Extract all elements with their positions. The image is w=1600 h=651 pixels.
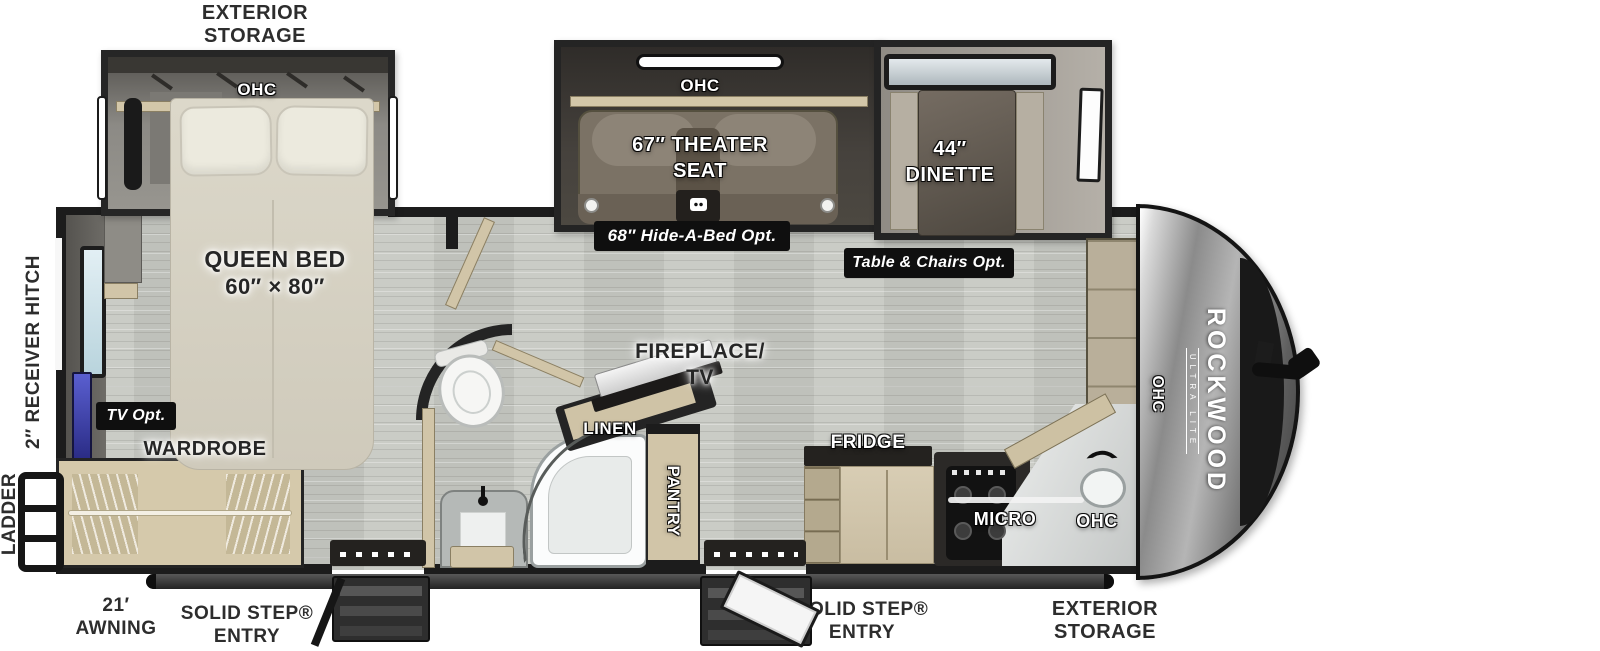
bedroom-window: [388, 96, 398, 200]
fireplace-tv-label: FIREPLACE/: [630, 340, 770, 364]
micro-label: MICRO: [950, 508, 1060, 530]
slideout-back-band: [108, 57, 388, 73]
fridge-drawers: [804, 466, 840, 564]
theater-seat-label: 67″ THEATER: [590, 134, 810, 158]
exterior-storage-label-top: EXTERIOR STORAGE: [175, 2, 335, 48]
dinette-label: 44″: [880, 138, 1020, 162]
awning-line1: 21′: [64, 594, 168, 617]
bedroom-shelf: [104, 283, 138, 299]
bedroom-corner-cabinet: [104, 215, 142, 283]
receiver-hitch-label: 2″ RECEIVER HITCH: [22, 232, 46, 472]
rv-floorplan: OHC QUEEN BED 60″ × 80″ 67″ THEATER SEAT…: [0, 0, 1600, 651]
vanity-faucet-stem: [481, 486, 485, 498]
linen-label: LINEN: [568, 418, 652, 440]
skylight: [884, 54, 1056, 90]
mattress-seam: [272, 200, 274, 458]
brand-series: ULTRA LITE: [1186, 348, 1199, 454]
rear-window: [80, 246, 106, 378]
pillow: [275, 105, 368, 177]
entry-threshold-track: [714, 552, 798, 557]
tv-option-chip: TV Opt.: [96, 402, 176, 430]
step-tread: [340, 586, 422, 596]
exterior-storage-label-bottom: EXTERIOR STORAGE: [1025, 598, 1185, 644]
solid-step-entry-label: SOLID STEP® ENTRY: [162, 602, 332, 648]
dinette-bench: [1016, 92, 1044, 230]
ohc-label-kitchen: OHC: [1062, 510, 1132, 532]
awning-line2: AWNING: [64, 617, 168, 640]
ohc-label-theater: OHC: [665, 76, 735, 96]
kitchen-sink: [1080, 468, 1126, 508]
ohc-label-front: OHC: [1147, 362, 1167, 426]
solid-step-line1: SOLID STEP®: [162, 602, 332, 625]
hide-a-bed-option-chip: 68″ Hide-A-Bed Opt.: [594, 221, 790, 251]
brand-logo: ROCKWOOD ULTRA LITE: [1185, 291, 1231, 511]
console-outlet-icon: [690, 198, 707, 211]
exterior-storage-line1: EXTERIOR: [175, 2, 335, 25]
towel-bar: [948, 497, 1084, 503]
fridge-door-divider: [886, 470, 888, 560]
wall-stub: [446, 213, 458, 249]
table-chairs-option-chip: Table & Chairs Opt.: [844, 248, 1014, 278]
bedroom-mirror: [124, 98, 142, 190]
awning-end-cap: [146, 574, 156, 589]
ohc-shelf: [570, 96, 868, 107]
vanity-sink: [460, 512, 506, 548]
pantry-top-cap: [646, 424, 700, 434]
wardrobe-rod: [68, 510, 292, 516]
stove-controls: [952, 470, 1010, 475]
dinette-label-2: DINETTE: [880, 164, 1020, 188]
ladder-rung: [25, 535, 57, 542]
theater-seat-label-2: SEAT: [590, 160, 810, 182]
entry-threshold-track: [340, 552, 416, 557]
dinette-window: [1076, 88, 1103, 183]
fireplace-tv-label-2: TV: [630, 366, 770, 388]
wardrobe-label: WARDROBE: [110, 438, 300, 462]
awning-end-cap: [1104, 574, 1114, 589]
pillow: [179, 105, 272, 177]
pantry-label: PANTRY: [662, 441, 684, 561]
ohc-label-bedroom: OHC: [222, 80, 292, 100]
rear-window-slit: [55, 238, 62, 370]
pantry-bottom-cap: [646, 560, 700, 568]
ladder-icon: [18, 472, 64, 572]
step-tread: [340, 626, 422, 636]
bedroom-window: [97, 96, 107, 200]
exterior-storage-line2: STORAGE: [175, 25, 335, 48]
ladder-rung: [25, 505, 57, 512]
fridge-label: FRIDGE: [820, 432, 916, 454]
step-stool: [450, 546, 514, 568]
cupholder: [820, 198, 835, 213]
queen-bed-label: QUEEN BED: [160, 246, 390, 270]
exterior-storage-line2: STORAGE: [1025, 621, 1185, 644]
awning-roller: [146, 574, 1114, 589]
step-tread: [340, 606, 422, 616]
cupholder: [584, 198, 599, 213]
queen-bed-size-label: 60″ × 80″: [160, 274, 390, 298]
slideout-window: [636, 54, 784, 70]
exterior-storage-line1: EXTERIOR: [1025, 598, 1185, 621]
solid-step-line2: ENTRY: [162, 625, 332, 648]
awning-label: 21′ AWNING: [64, 594, 168, 640]
top-wall-segment: [388, 207, 562, 217]
brand-name: ROCKWOOD: [1201, 308, 1230, 494]
dinette-table: [918, 90, 1016, 236]
